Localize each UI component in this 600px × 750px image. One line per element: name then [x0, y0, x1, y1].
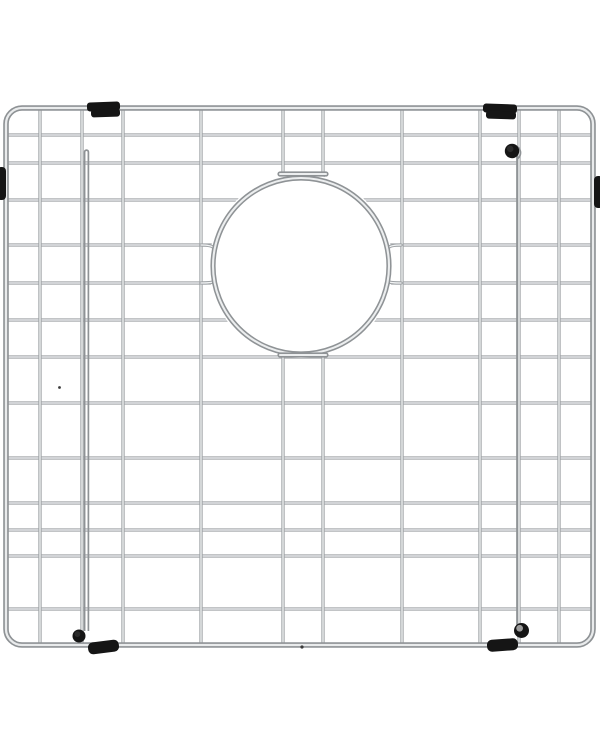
right-side-bumper — [594, 176, 600, 208]
left-side-bumper-part — [0, 167, 6, 200]
top-right-bumper-part — [486, 110, 516, 119]
top-right-bumper — [483, 103, 517, 119]
right-top-knob-hub — [507, 146, 513, 152]
dust-speck — [58, 386, 61, 389]
top-left-bumper-part — [91, 108, 120, 117]
top-left-bumper — [87, 101, 120, 117]
right-bottom-foot-hub — [516, 625, 523, 632]
dust-speck — [300, 645, 303, 648]
product-image — [0, 0, 600, 750]
page-background — [0, 0, 600, 750]
bottom-right-bumper — [487, 638, 519, 652]
left-side-bumper — [0, 167, 6, 200]
right-side-bumper-part — [594, 176, 600, 208]
bottom-right-bumper-part — [487, 638, 519, 652]
drain-opening-mask — [209, 174, 393, 358]
left-bottom-foot-hub — [74, 631, 80, 637]
sink-grid-photo — [0, 0, 600, 750]
